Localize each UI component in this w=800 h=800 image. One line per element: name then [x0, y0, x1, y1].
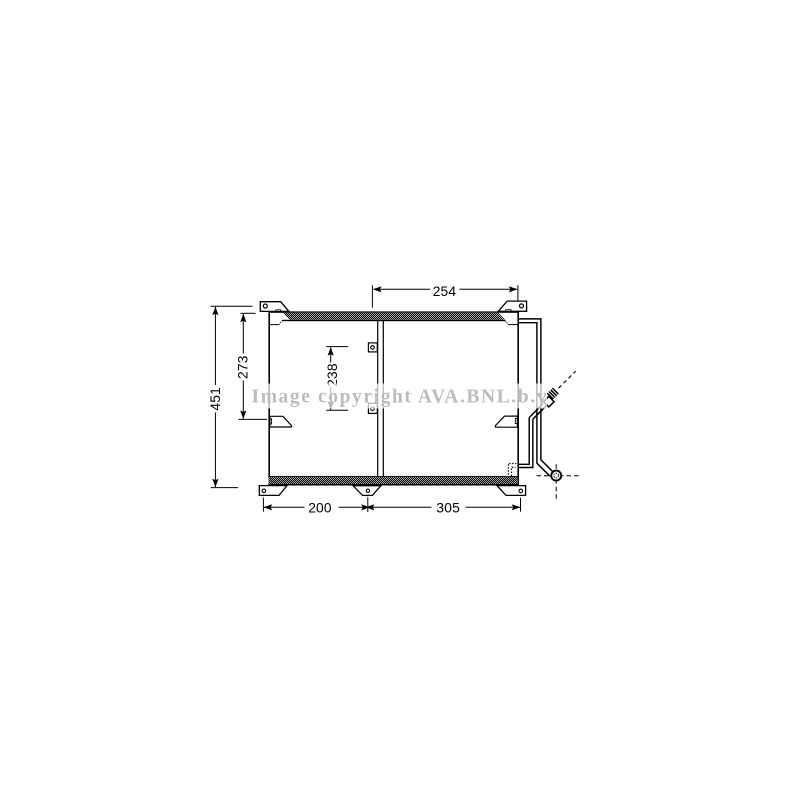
- svg-text:254: 254: [433, 284, 457, 299]
- svg-text:Image copyright AVA.BNL.b.v: Image copyright AVA.BNL.b.v: [252, 387, 549, 408]
- svg-text:238: 238: [325, 363, 340, 387]
- svg-text:273: 273: [235, 355, 250, 379]
- svg-text:451: 451: [208, 387, 223, 411]
- svg-text:200: 200: [308, 500, 332, 515]
- svg-text:305: 305: [436, 500, 460, 515]
